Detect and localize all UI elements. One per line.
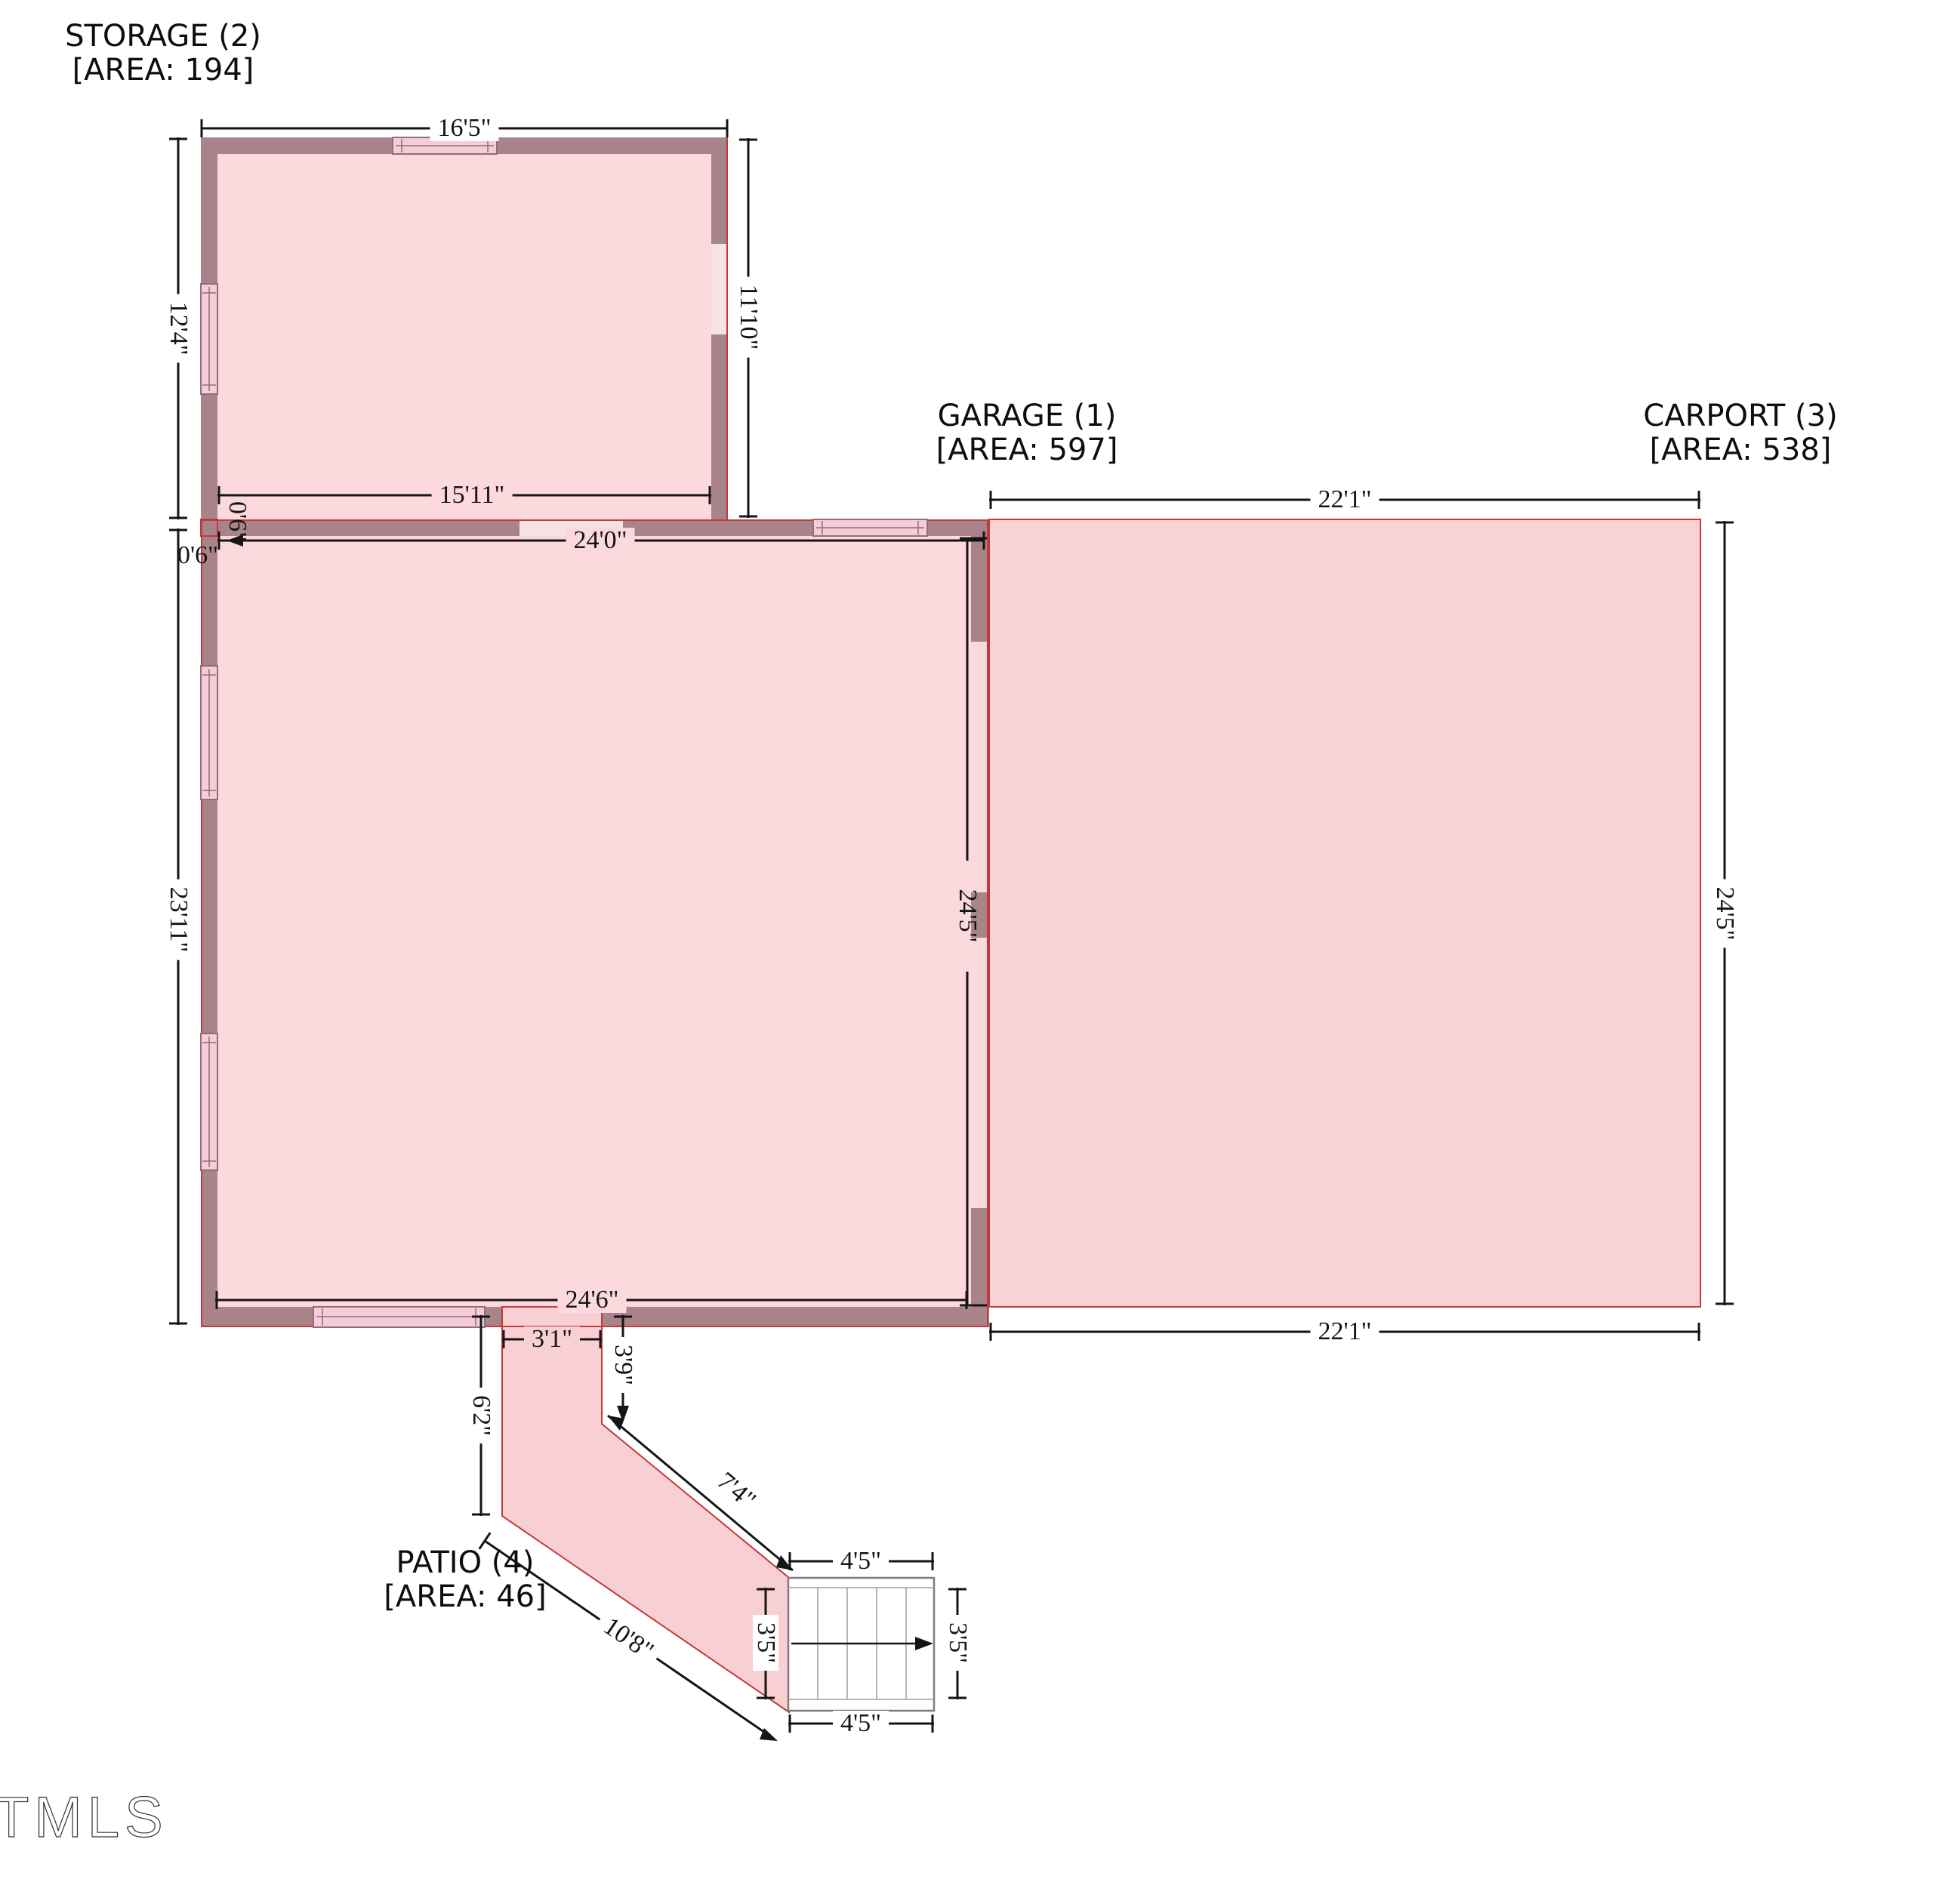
dim-garage-right: 24'5" (954, 886, 980, 945)
dim-stairs-top: 4'5" (833, 1548, 889, 1574)
boundary-pier-bottom (971, 1208, 989, 1307)
boundary-pier-top (971, 536, 989, 642)
patio-label: PATIO (4) [AREA: 46] (384, 1546, 546, 1614)
dim-storage-bottom: 15'11" (432, 482, 513, 508)
storage-interior (217, 154, 711, 519)
garage-name: GARAGE (1) (936, 399, 1118, 433)
carport-area (989, 519, 1700, 1307)
dim-storage-top: 16'5" (430, 116, 498, 141)
storage-name: STORAGE (2) (65, 20, 261, 54)
dim-patio-left: 6'2" (468, 1388, 494, 1443)
storage-door-gap (711, 244, 728, 334)
storage-left-window (201, 284, 217, 394)
dim-stairs-bottom: 4'5" (833, 1711, 889, 1736)
carport-name: CARPORT (3) (1643, 399, 1837, 433)
floor-plan-page: TMLS STORAGE (2) [AREA: 194] GARAGE (1) … (0, 0, 1933, 1904)
carport-area: [AREA: 538] (1643, 433, 1837, 467)
garage-interior (217, 536, 988, 1307)
garage-area: [AREA: 597] (936, 433, 1118, 467)
patio-area: [AREA: 46] (384, 1580, 546, 1614)
dim-carport-right: 24'5" (1712, 879, 1737, 947)
carport-label: CARPORT (3) [AREA: 538] (1643, 399, 1837, 467)
dim-carport-top: 22'1" (1310, 487, 1379, 513)
dim-patio-right: 3'9" (610, 1337, 636, 1393)
dim-offset-horizontal: 0'6" (174, 543, 221, 568)
garage-label: GARAGE (1) [AREA: 597] (936, 399, 1118, 467)
dim-stairs-right: 3'5" (945, 1615, 970, 1671)
dim-garage-bottom: 24'6" (557, 1287, 626, 1313)
garage-bottom-window (313, 1307, 485, 1327)
garage-left-window-upper (201, 666, 217, 799)
storage-label: STORAGE (2) [AREA: 194] (65, 20, 261, 88)
dim-storage-right: 11'10" (735, 277, 761, 358)
dim-garage-top: 24'0" (566, 528, 634, 553)
storage-area: [AREA: 194] (65, 54, 261, 88)
patio-name: PATIO (4) (384, 1546, 546, 1580)
dim-stairs-left: 3'5" (753, 1615, 778, 1671)
dim-offset-vertical: 0'6" (224, 498, 250, 545)
stairs (788, 1578, 934, 1711)
garage-top-window (813, 519, 927, 536)
dim-storage-left: 12'4" (165, 294, 191, 362)
storage-room (201, 137, 728, 519)
garage-left-window-lower (201, 1034, 217, 1170)
dim-garage-left: 23'11" (165, 880, 191, 960)
dim-patio-neck: 3'1" (524, 1326, 580, 1352)
tmls-watermark: TMLS (0, 1785, 168, 1850)
dim-carport-bottom: 22'1" (1310, 1319, 1379, 1345)
